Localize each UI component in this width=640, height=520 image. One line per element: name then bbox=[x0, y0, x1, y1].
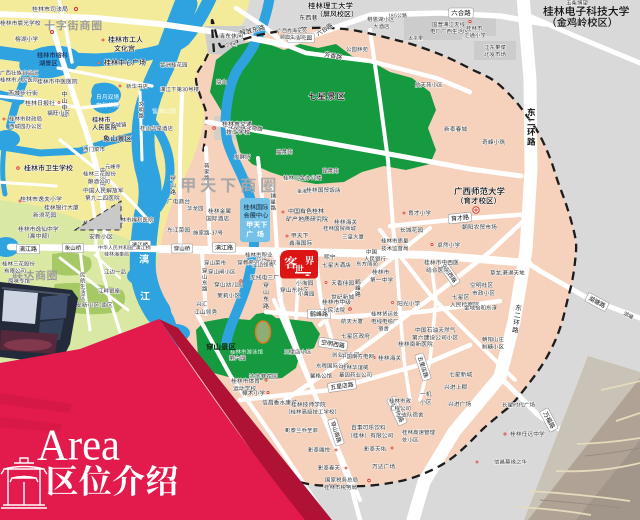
svg-text:Area: Area bbox=[37, 421, 120, 470]
